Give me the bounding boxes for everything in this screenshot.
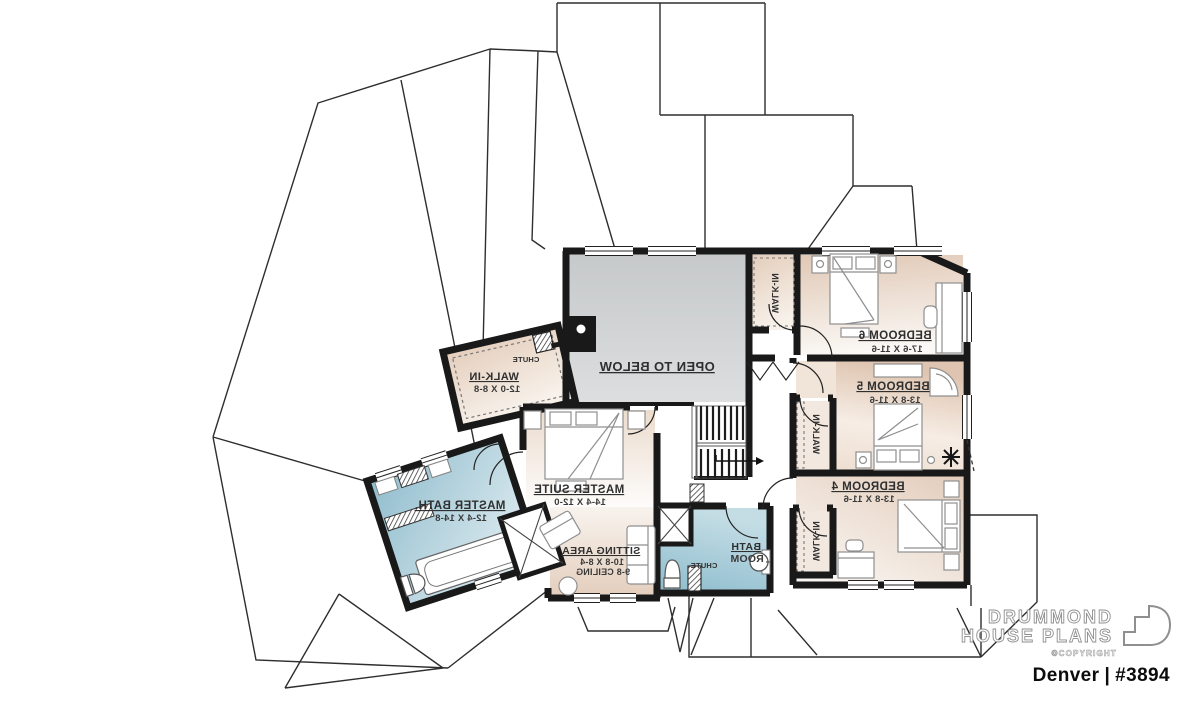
toilet-tank-bath (664, 578, 680, 588)
staircase (692, 406, 764, 478)
plan-title: Denver|#3894 (1033, 665, 1170, 686)
double-door-hall (747, 362, 799, 380)
bath-room-label-2: ROOM (730, 553, 764, 565)
side-table (559, 577, 577, 595)
open-to-below-label: OPEN TO BELOW (599, 359, 715, 374)
master-bath-dims: 12-4 X 14-8 (435, 513, 487, 524)
master-bath-label: MASTER BATH. (415, 500, 506, 512)
bedroom5-entry-floor (796, 361, 836, 398)
sitting-area-label: SITTING AREA (562, 545, 641, 557)
brand-copyright: ©COPYRIGHT (1052, 649, 1117, 658)
walkin-bedroom4-label: WALK-IN (811, 521, 821, 561)
stairs-direction-arrow (716, 455, 764, 465)
sitting-area-dims: 10-8 X 8-4 (580, 557, 624, 567)
plan-title-separator: | (1104, 665, 1110, 686)
hall-chute-hatch (690, 484, 704, 502)
chute-master-box (533, 331, 555, 353)
bedroom6-label: BEDROOM 6 (858, 330, 931, 342)
brand-line-1: DRUMMOND (988, 607, 1113, 627)
floor-plan-svg: OPEN TO BELOW WALK-IN 12-0 X 8-8 CHUTE M… (0, 0, 1200, 711)
master-suite-label: MASTER SUITE (534, 484, 624, 496)
bedroom5-dims: 13-8 X 11-6 (869, 395, 920, 406)
sitting-area-note: 9-8 CEILING (576, 567, 630, 577)
walkin-bedroom5-label: WALK-IN (811, 414, 821, 454)
fireplace-box (566, 316, 596, 352)
chute-master-label: CHUTE (513, 355, 540, 364)
bedroom4-label: BEDROOM 4 (831, 481, 904, 493)
brand-line-2: HOUSE PLANS (961, 626, 1113, 646)
bedroom5-label: BEDROOM 5 (856, 381, 929, 393)
floor-plan-page: OPEN TO BELOW WALK-IN 12-0 X 8-8 CHUTE M… (0, 0, 1200, 711)
bedroom6-dims: 17-6 X 11-6 (871, 344, 922, 355)
plan-name: Denver (1033, 665, 1100, 686)
bedroom4-dims: 13-8 X 11-6 (843, 494, 894, 505)
plan-number: #3894 (1115, 665, 1170, 686)
master-suite-dims: 14-4 X 12-0 (554, 497, 606, 508)
dresser-bedroom5 (874, 364, 922, 377)
plant-icon (942, 447, 960, 467)
drummond-logo-icon (1124, 606, 1170, 645)
chute-bath-label: CHUTE (691, 561, 718, 570)
walkin-bedroom6-label: WALK-IN (770, 273, 780, 313)
bath-room-label-1: BATH (731, 541, 761, 553)
master-walkin-label: WALK-IN (469, 371, 519, 383)
master-walkin-dims: 12-0 X 8-8 (474, 384, 520, 395)
